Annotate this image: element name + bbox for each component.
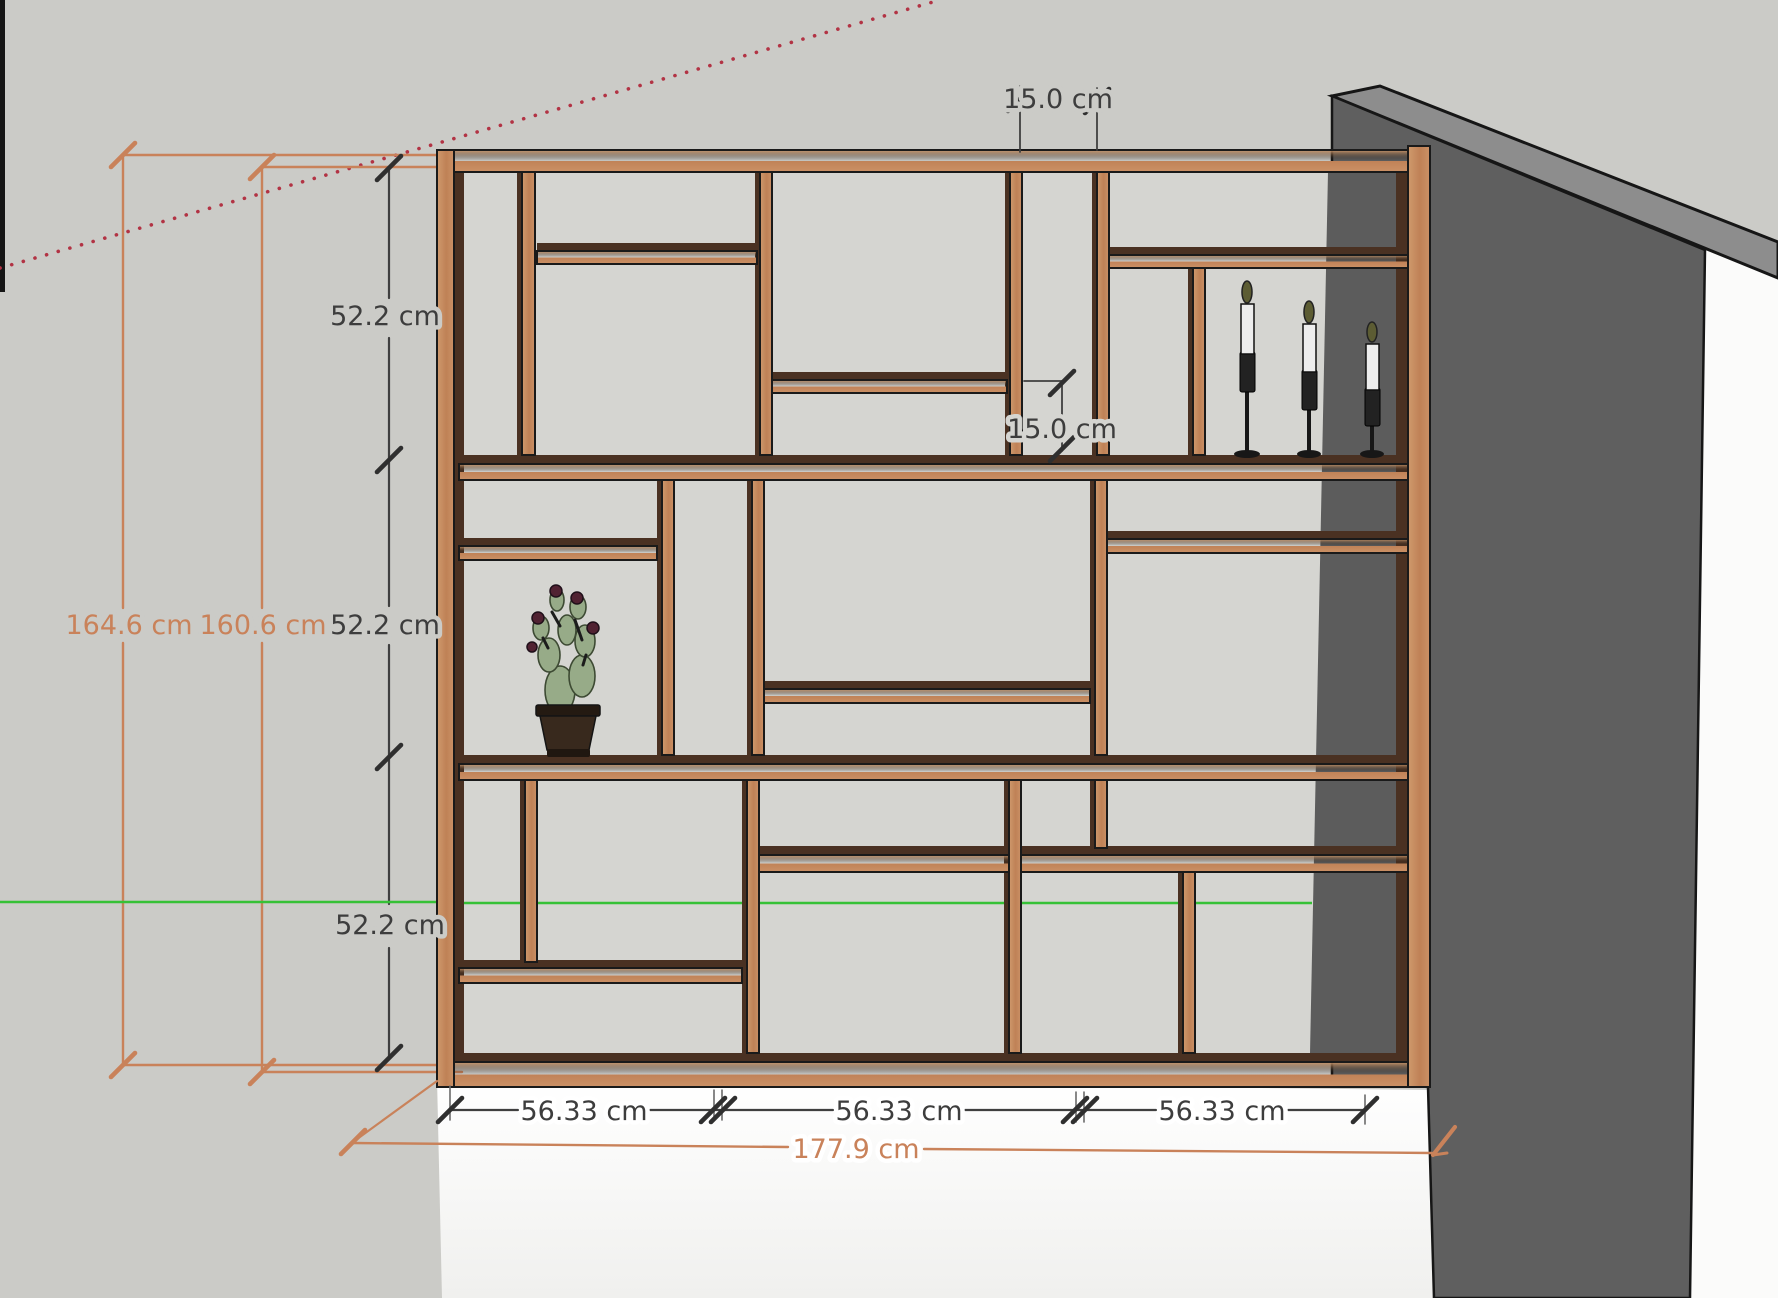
shelf-interior-background: [459, 172, 1408, 1053]
green-axis-line: [0, 902, 1312, 903]
column-width-label-2: 56.33 cm: [835, 1096, 962, 1127]
column-width-label-3: 56.33 cm: [1158, 1096, 1285, 1127]
middle-niche-height-label: 15.0 cm: [1007, 414, 1117, 445]
model-viewport[interactable]: 15.0 cm 15.0 cm 52.2 cm 52.2 cm 52.2 cm …: [0, 0, 1778, 1298]
row-height-label-1: 52.2 cm: [330, 301, 440, 332]
inner-height-label: 160.6 cm: [199, 610, 326, 641]
cactus-pot-rim: [536, 705, 600, 716]
scene-canvas[interactable]: 15.0 cm 15.0 cm 52.2 cm 52.2 cm 52.2 cm …: [0, 0, 1778, 1298]
top-niche-width-label: 15.0 cm: [1003, 84, 1113, 115]
column-width-label-1: 56.33 cm: [520, 1096, 647, 1127]
row-height-label-2: 52.2 cm: [330, 610, 440, 641]
left-edge-geometry: [0, 0, 5, 292]
row-height-label-3: 52.2 cm: [335, 910, 445, 941]
overall-height-label: 164.6 cm: [65, 610, 192, 641]
overall-width-label: 177.9 cm: [792, 1134, 919, 1165]
cactus-pot: [540, 716, 596, 750]
cactus-pot-base: [547, 749, 590, 757]
